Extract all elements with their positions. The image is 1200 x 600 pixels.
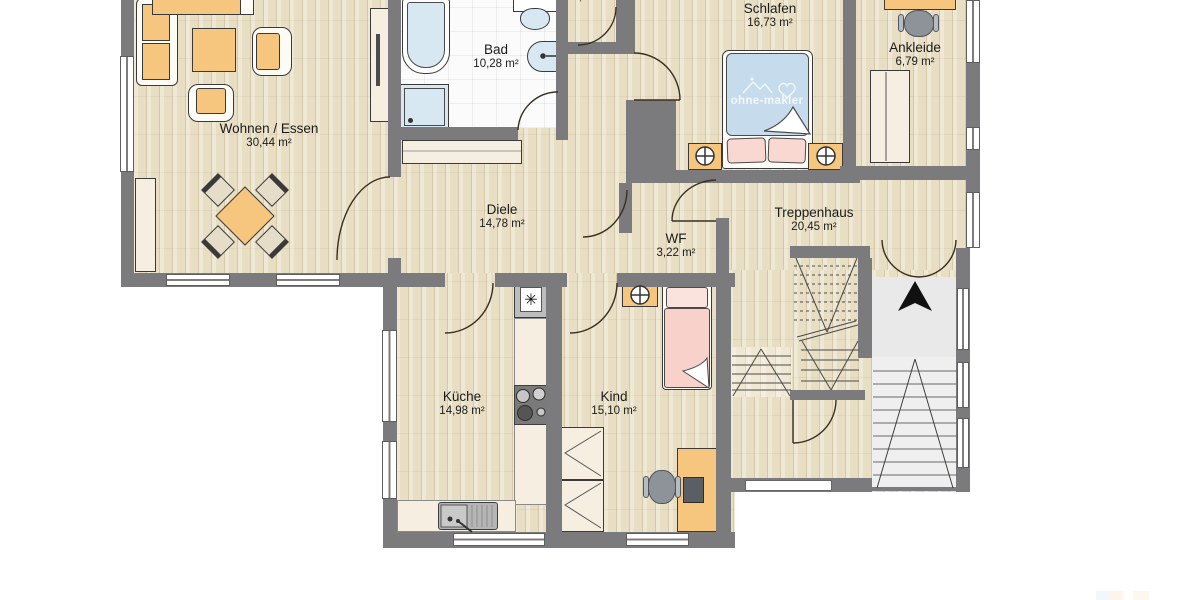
desk xyxy=(884,0,956,10)
hall-sideboard xyxy=(402,140,522,164)
wall-pillar xyxy=(626,100,676,170)
room-label-treppenhaus: Treppenhaus 20,45 m² xyxy=(774,205,853,234)
window xyxy=(453,533,545,546)
wall xyxy=(121,0,134,58)
room-label-kind: Kind 15,10 m² xyxy=(591,389,636,418)
window xyxy=(966,0,980,63)
stove xyxy=(514,385,548,425)
armchair-seat xyxy=(256,33,280,70)
window xyxy=(382,441,397,499)
room-label-kueche: Küche 14,98 m² xyxy=(439,389,484,418)
room-label-wohnen-essen: Wohnen / Essen 30,44 m² xyxy=(220,121,319,150)
tv-sideboard xyxy=(370,8,390,122)
watermark-logo-faint xyxy=(1096,591,1162,600)
kitchen-sink xyxy=(438,502,498,530)
window-sill xyxy=(745,480,832,491)
room-label-flur: 1,48 m² xyxy=(573,0,612,5)
bathtub-basin xyxy=(407,2,445,68)
wall xyxy=(121,273,397,287)
office-chair-arm xyxy=(933,14,939,32)
wall xyxy=(383,420,397,443)
bed-blanket xyxy=(664,308,710,388)
wall xyxy=(716,218,729,275)
sofa-cushion xyxy=(142,43,170,80)
bed-pillow xyxy=(727,137,767,163)
window xyxy=(957,418,969,468)
armchair-seat xyxy=(196,88,226,114)
wall-stub xyxy=(790,390,865,400)
tv xyxy=(376,34,380,86)
stairs-left-flight xyxy=(731,347,792,397)
wardrobe xyxy=(560,480,604,532)
sideboard-left xyxy=(135,178,156,272)
computer-monitor xyxy=(683,477,704,503)
wardrobe xyxy=(870,70,910,163)
nightstand xyxy=(688,143,722,170)
entry-landing xyxy=(870,277,958,357)
bed-blanket xyxy=(726,53,809,136)
room-label-schlafen: Schlafen 16,73 m² xyxy=(744,1,797,30)
exterior-stairs-edge xyxy=(872,487,958,491)
wall xyxy=(716,275,731,548)
freezer-symbol: ✳ xyxy=(520,287,542,312)
wall xyxy=(858,258,872,358)
office-chair xyxy=(904,10,934,37)
window xyxy=(276,274,340,286)
wall xyxy=(840,166,980,180)
window xyxy=(120,56,134,172)
room-label-diele: Diele 14,78 m² xyxy=(479,202,524,231)
sofa-horizontal xyxy=(152,0,242,15)
wall xyxy=(616,0,635,54)
wall xyxy=(121,170,134,287)
outside-mask xyxy=(970,248,1010,508)
freezer-icon: ✳ xyxy=(524,292,537,309)
floor-plan: ✳ xyxy=(0,0,1200,600)
sofa-armrest xyxy=(240,0,254,15)
window xyxy=(966,192,980,248)
office-chair-arm xyxy=(675,476,681,498)
office-chair-arm xyxy=(643,476,649,498)
room-label-bad: Bad 10,28 m² xyxy=(473,42,518,71)
wall xyxy=(383,273,445,287)
window xyxy=(166,274,230,286)
wall xyxy=(388,127,518,140)
wall xyxy=(626,170,860,183)
wall xyxy=(843,0,856,166)
window xyxy=(626,533,689,546)
bed-pillow xyxy=(768,137,807,163)
window xyxy=(957,362,969,408)
bed-pillow xyxy=(666,287,708,308)
wall xyxy=(383,287,397,332)
wall xyxy=(495,273,567,287)
wall xyxy=(556,0,568,140)
shower-drain xyxy=(408,118,413,123)
room-label-ankleide: Ankleide 6,79 m² xyxy=(889,40,941,69)
office-chair xyxy=(648,470,676,504)
room-label-wf: WF 3,22 m² xyxy=(657,231,696,260)
window xyxy=(966,127,980,150)
washbasin xyxy=(527,41,558,72)
wall xyxy=(546,287,562,532)
office-chair-arm xyxy=(898,14,904,32)
window xyxy=(957,288,969,350)
toilet-bowl xyxy=(520,8,550,30)
window xyxy=(382,330,397,422)
wall xyxy=(619,183,632,233)
exterior-stairs xyxy=(872,357,958,490)
wall xyxy=(790,246,870,258)
coffee-table xyxy=(192,28,236,72)
wall xyxy=(388,0,401,177)
wardrobe xyxy=(560,427,604,480)
nightstand xyxy=(808,143,843,170)
